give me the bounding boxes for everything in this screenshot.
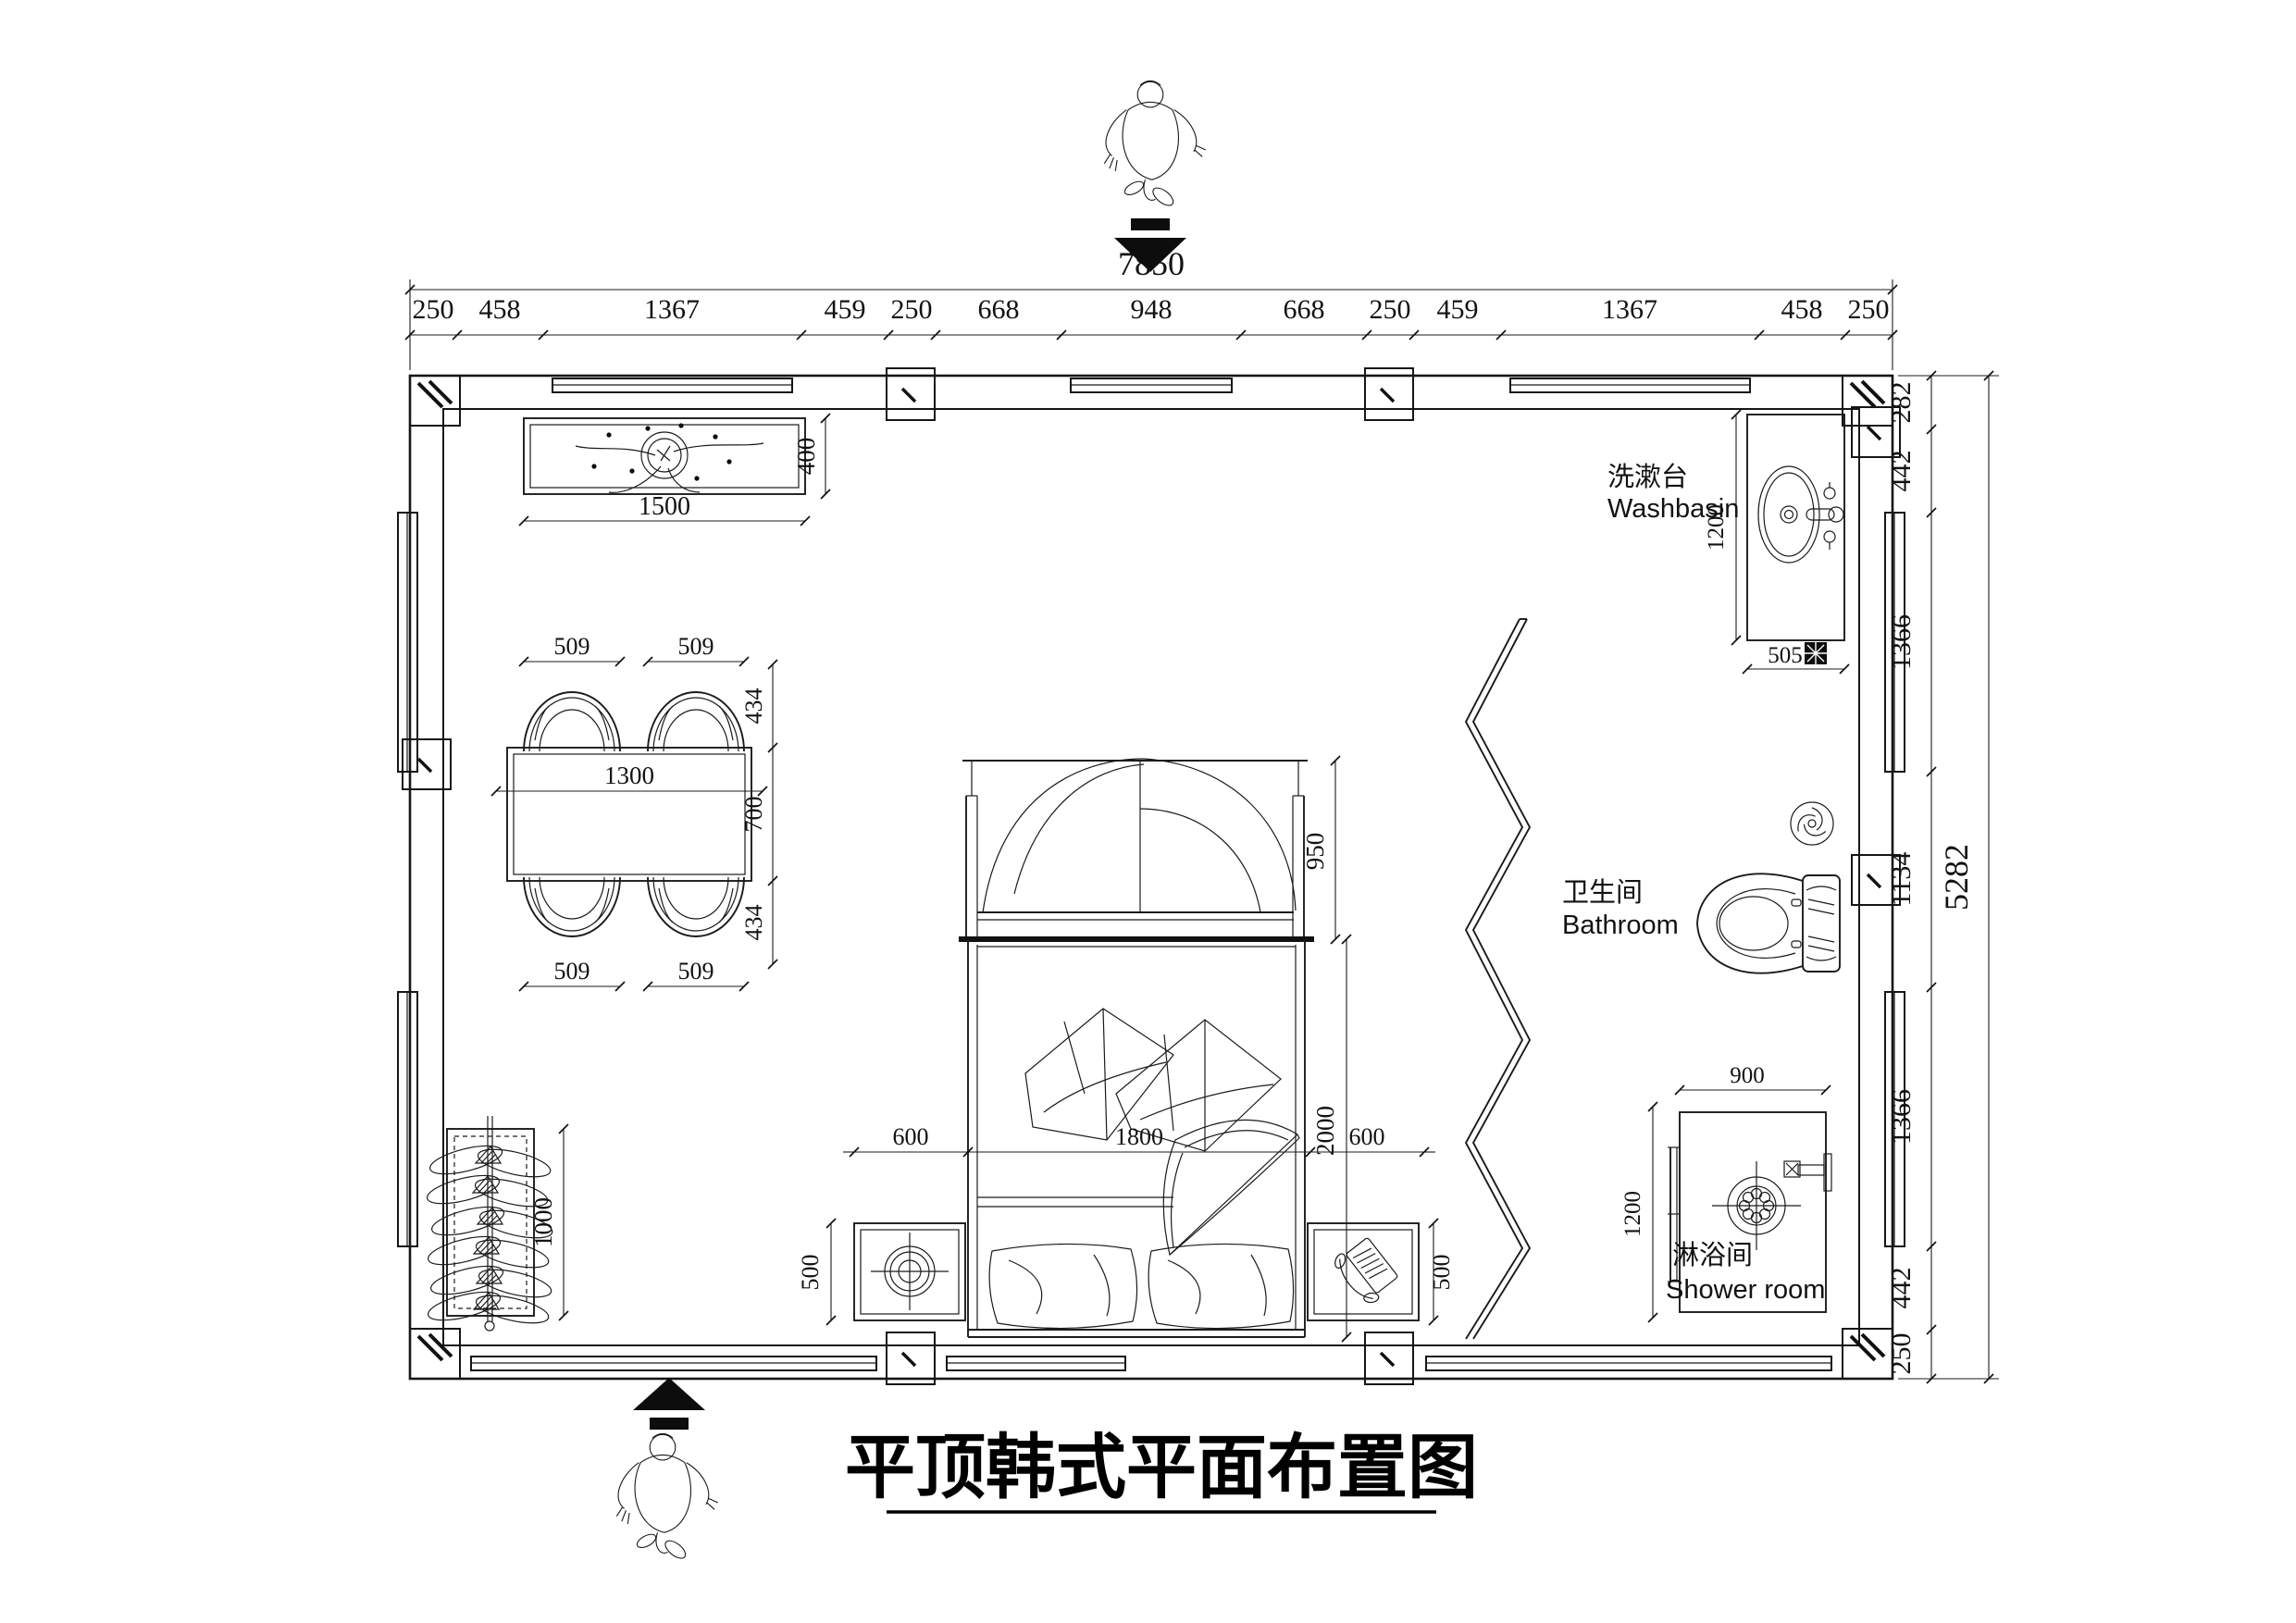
washbasin-counter — [1747, 415, 1844, 664]
column — [887, 1332, 935, 1384]
dim-bench-depth: 950 — [1301, 833, 1329, 871]
dim-label: 459 — [1437, 294, 1479, 325]
sleeping-pillow — [1148, 1244, 1293, 1328]
dining-chair — [648, 692, 744, 751]
shower-label-en: Shower room — [1666, 1275, 1825, 1305]
dim-right-total: 5282 — [1938, 844, 1975, 911]
dim-label: 1367 — [1602, 294, 1657, 325]
dim-label: 442 — [1886, 451, 1917, 492]
telephone-icon — [1329, 1233, 1404, 1310]
dim-chair-depth: 434 — [740, 688, 767, 725]
faucet-icon — [1806, 482, 1843, 550]
dim-counter-depth: 505 — [1768, 643, 1803, 668]
throw-pillow — [1025, 1009, 1173, 1140]
dining-chair — [648, 877, 744, 936]
washbasin-label-en: Washbasin — [1607, 494, 1739, 524]
bed-group — [854, 759, 1419, 1337]
window-band-bottom — [471, 1357, 1831, 1370]
dim-label: 442 — [1886, 1268, 1917, 1309]
dim-chair-depth: 434 — [740, 905, 767, 941]
dim-label: 948 — [1131, 294, 1173, 325]
folding-screen — [1466, 619, 1530, 1339]
table-lamp-icon — [871, 1233, 949, 1310]
shower-head-icon — [1784, 1154, 1831, 1191]
dim-label: 1366 — [1886, 1089, 1917, 1145]
dim-bed-side: 600 — [1349, 1123, 1385, 1150]
drain-swirl-icon — [1791, 802, 1833, 845]
dim-shower-depth: 1200 — [1620, 1191, 1645, 1237]
nightstand-left — [854, 1223, 965, 1320]
dim-rack-length: 1000 — [529, 1197, 557, 1247]
dim-label: 458 — [1781, 294, 1823, 325]
dim-label: 459 — [825, 294, 866, 325]
dim-label: 250 — [891, 294, 933, 325]
dim-nightstand: 500 — [1428, 1255, 1455, 1291]
fan-back-bench — [962, 759, 1308, 936]
window-band-top — [552, 378, 1750, 392]
column — [410, 376, 460, 426]
dim-label: 250 — [1848, 294, 1890, 325]
dim-label: 250 — [1370, 294, 1411, 325]
dim-table-length: 1300 — [604, 762, 654, 789]
shower-drain-icon — [1712, 1161, 1801, 1250]
dim-label: 668 — [1284, 294, 1325, 325]
dining-chair — [524, 692, 620, 751]
dim-chain-top: 250 458 1367 459 250 668 948 668 250 459… — [410, 294, 1893, 335]
dim-chair-width: 509 — [554, 633, 590, 660]
washbasin-label-zh: 洗漱台 — [1607, 462, 1688, 492]
window-band-left — [398, 513, 417, 1246]
floor-plan-canvas: 7850 250 458 1367 459 250 668 948 668 25… — [0, 0, 2296, 1623]
bathroom-label-zh: 卫生间 — [1562, 877, 1643, 908]
dim-console-depth: 400 — [792, 438, 820, 476]
dim-console-length: 1500 — [639, 492, 690, 521]
plan-title: 平顶韩式平面布置图 — [845, 1429, 1478, 1507]
column — [1843, 376, 1893, 426]
dim-chair-width: 509 — [678, 958, 714, 985]
dim-label: 1134 — [1886, 852, 1917, 907]
sleeping-pillow — [989, 1244, 1136, 1328]
dining-set — [507, 692, 751, 936]
person-icon-top — [1104, 81, 1205, 208]
dim-label: 458 — [479, 294, 521, 325]
dim-label: 1366 — [1886, 614, 1917, 670]
dim-label: 1367 — [644, 294, 700, 325]
dim-nightstand: 500 — [797, 1255, 824, 1291]
dim-label: 250 — [1886, 1333, 1917, 1375]
nightstand-right — [1308, 1223, 1419, 1320]
column — [1843, 1329, 1893, 1379]
dim-chair-width: 509 — [554, 958, 590, 985]
basin — [1758, 466, 1819, 563]
floor-plan-drawing: 7850 250 458 1367 459 250 668 948 668 25… — [0, 0, 2296, 1623]
person-icon-bottom — [616, 1433, 717, 1561]
dim-label: 250 — [413, 294, 454, 325]
dim-label: 668 — [978, 294, 1020, 325]
toilet — [1697, 802, 1840, 973]
shower-label-zh: 淋浴间 — [1672, 1240, 1753, 1270]
column — [410, 1329, 460, 1379]
column — [1365, 1332, 1413, 1384]
dim-table-depth: 700 — [740, 797, 767, 833]
entry-arrow-up — [633, 1378, 705, 1430]
dim-bed-width: 1800 — [1115, 1123, 1163, 1150]
bathroom-label-en: Bathroom — [1562, 911, 1679, 940]
dim-bed-length: 2000 — [1311, 1106, 1339, 1156]
dim-shower-width: 900 — [1730, 1063, 1765, 1088]
plant-decor — [576, 423, 763, 492]
tv-console — [524, 418, 805, 494]
dim-chair-width: 509 — [678, 633, 714, 660]
dim-bed-side: 600 — [893, 1123, 929, 1150]
floor-drain-icon — [1805, 642, 1827, 664]
dim-label: 282 — [1886, 382, 1917, 424]
dining-chair — [524, 877, 620, 936]
